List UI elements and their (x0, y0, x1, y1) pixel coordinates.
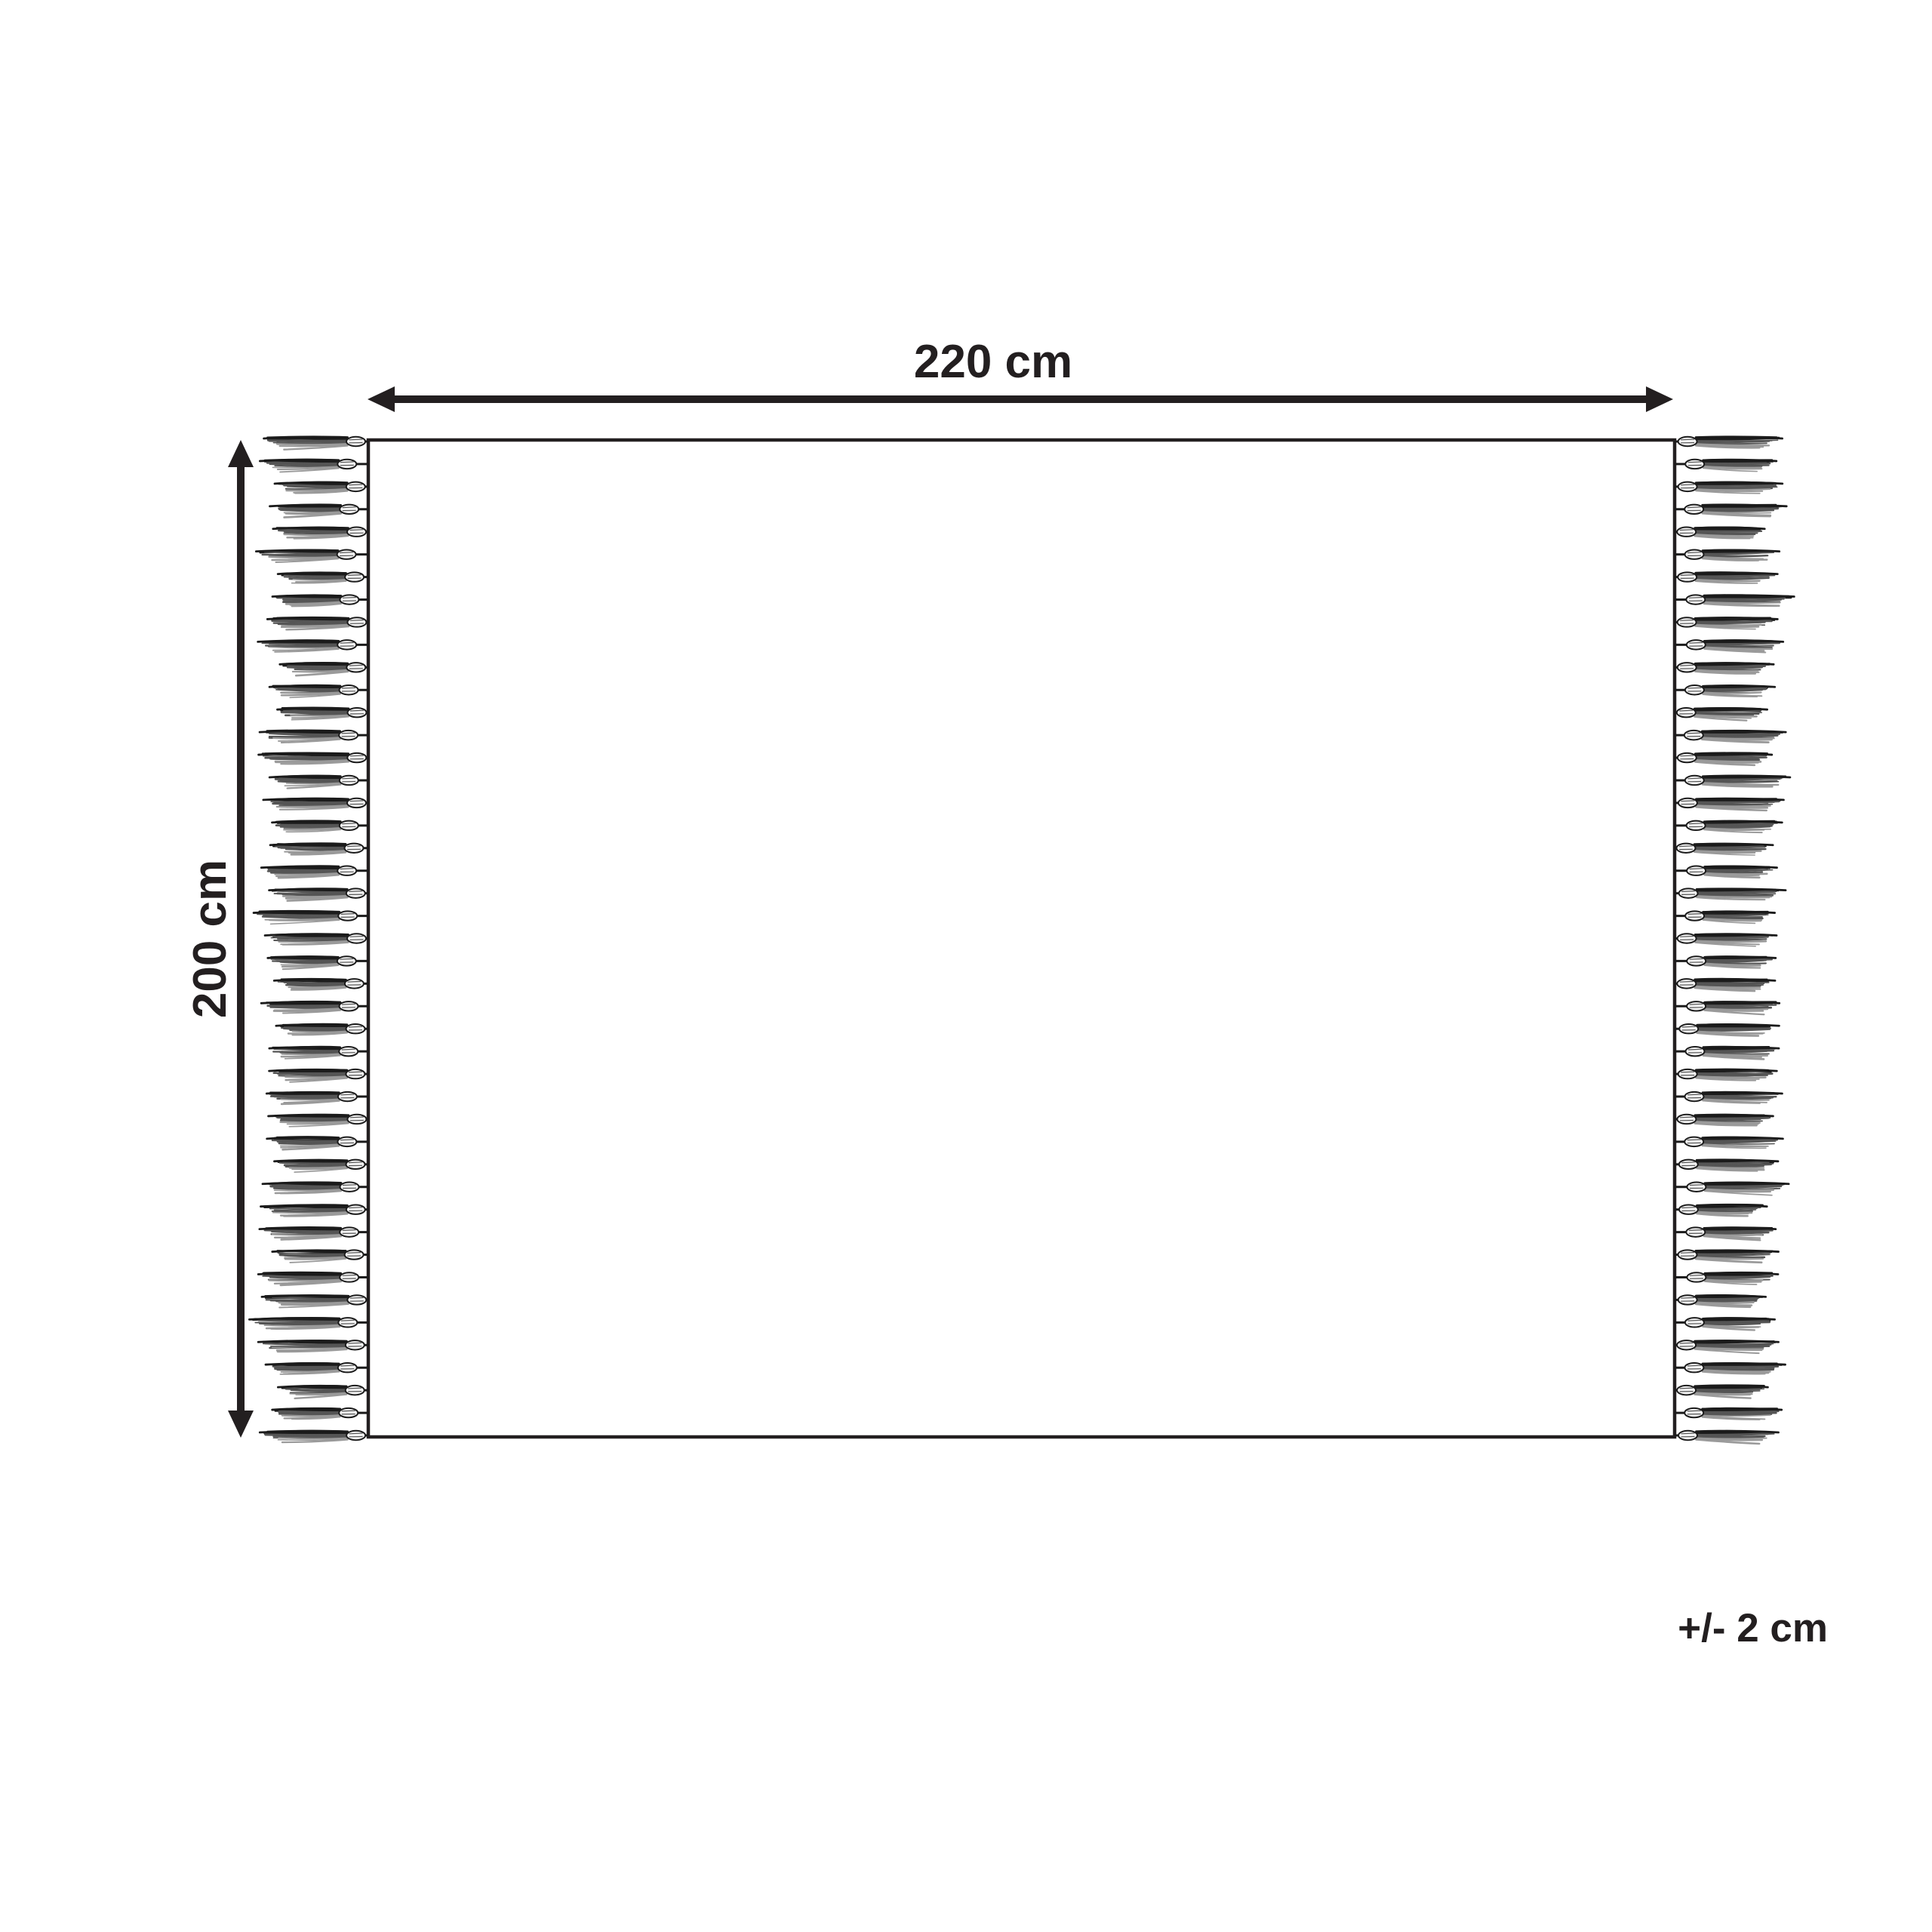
width-dimension-label: 220 cm (914, 336, 1072, 388)
fringe-tassel (1675, 821, 1782, 832)
fringe-tassel (272, 595, 368, 606)
fringe-tassel (1675, 798, 1783, 811)
fringe-tassel (1675, 1250, 1779, 1262)
fringe-tassel (272, 1250, 368, 1263)
fringe-tassel (258, 1340, 368, 1352)
fringe-tassel (1675, 505, 1786, 517)
fringe-tassel (269, 776, 368, 789)
height-arrow-top-head-icon (228, 440, 254, 467)
fringe-tassel (1675, 1340, 1779, 1353)
fringe-tassel (278, 572, 368, 583)
fringe-tassel (1675, 685, 1775, 697)
fringe-tassel (1675, 595, 1794, 606)
fringe-tassel (1675, 1363, 1786, 1374)
fringe-tassel (260, 460, 368, 472)
fringe-tassel (1675, 1408, 1782, 1420)
fringe-tassel (261, 1001, 368, 1013)
fringe-tassel (276, 1024, 368, 1035)
fringe-tassel (1675, 460, 1777, 472)
fringe-tassel (1675, 1160, 1778, 1171)
fringe-tassel (1675, 1227, 1776, 1240)
height-dimension-label: 200 cm (184, 860, 236, 1018)
fringe-tassel (1675, 911, 1775, 923)
width-arrow-left-head-icon (368, 386, 395, 412)
rug-fringe-left (249, 437, 368, 1442)
rug-body (368, 440, 1675, 1437)
fringe-tassel (269, 888, 368, 900)
fringe-tassel (1675, 1318, 1775, 1330)
fringe-tassel (269, 685, 368, 697)
fringe-tassel (272, 821, 369, 832)
fringe-tassel (261, 1204, 369, 1216)
width-dimension-arrow (368, 386, 1673, 412)
fringe-tassel (1675, 776, 1790, 787)
fringe-tassel (261, 866, 368, 878)
fringe-tassel (272, 1408, 368, 1420)
fringe-tassel (1675, 549, 1780, 560)
fringe-tassel (1675, 1001, 1780, 1014)
rug-fringe-right (1675, 437, 1794, 1444)
fringe-tassel (273, 528, 368, 539)
fringe-tassel (1675, 1431, 1779, 1444)
fringe-tassel (1675, 753, 1772, 765)
fringe-tassel (1675, 1386, 1767, 1398)
fringe-tassel (269, 1047, 368, 1059)
fringe-tassel (1675, 1069, 1777, 1081)
fringe-tassel (1675, 663, 1774, 674)
fringe-tassel (280, 663, 368, 675)
fringe-tassel (1675, 1137, 1783, 1149)
fringe-tassel (1675, 866, 1777, 878)
fringe-tassel (1675, 527, 1764, 538)
fringe-tassel (264, 437, 368, 450)
fringe-tassel (275, 1160, 369, 1173)
fringe-tassel (1675, 1183, 1789, 1195)
fringe-tassel (267, 1137, 368, 1149)
fringe-tassel (1675, 1047, 1779, 1059)
height-arrow-bottom-head-icon (228, 1411, 254, 1438)
fringe-tassel (1675, 979, 1775, 991)
fringe-tassel (1675, 731, 1786, 743)
fringe-tassel (278, 708, 369, 720)
fringe-tassel (1675, 482, 1783, 494)
fringe-tassel (1675, 437, 1783, 448)
fringe-tassel (1675, 1272, 1778, 1284)
fringe-tassel (249, 1318, 368, 1328)
tolerance-label: +/- 2 cm (1678, 1606, 1828, 1651)
fringe-tassel (1675, 1295, 1766, 1306)
width-arrow-right-head-icon (1646, 386, 1673, 412)
fringe-tassel (1675, 617, 1777, 629)
fringe-tassel (278, 1386, 368, 1398)
fringe-tassel (1675, 888, 1786, 900)
fringe-tassel (1675, 1092, 1782, 1103)
fringe-tassel (263, 798, 368, 810)
fringe-tassel (259, 753, 368, 764)
fringe-tassel (1675, 1204, 1767, 1216)
fringe-tassel (1675, 1024, 1779, 1035)
rug-dimension-diagram: 220 cm 200 cm +/- 2 cm (0, 0, 1932, 1932)
fringe-tassel (260, 731, 368, 743)
fringe-tassel (266, 1092, 368, 1104)
fringe-tassel (274, 979, 368, 990)
fringe-tassel (267, 617, 368, 629)
fringe-tassel (256, 549, 368, 562)
fringe-tassel (270, 505, 369, 518)
fringe-tassel (1675, 708, 1767, 721)
fringe-tassel (258, 640, 368, 652)
fringe-tassel (263, 1183, 368, 1194)
fringe-tassel (1675, 640, 1783, 652)
fringe-tassel (1675, 1115, 1773, 1125)
fringe-tassel (260, 1431, 368, 1442)
fringe-tassel (268, 956, 368, 969)
fringe-tassel (270, 844, 368, 855)
diagram-canvas: 220 cm 200 cm +/- 2 cm (0, 0, 1932, 1932)
fringe-tassel (254, 911, 368, 924)
fringe-tassel (1675, 956, 1776, 968)
fringe-tassel (275, 482, 368, 494)
fringe-tassel (269, 1115, 368, 1127)
fringe-tassel (258, 1272, 368, 1285)
fringe-tassel (262, 1295, 368, 1307)
fringe-tassel (269, 1069, 368, 1082)
fringe-tassel (260, 1227, 368, 1239)
fringe-tassel (1675, 572, 1777, 583)
fringe-tassel (265, 934, 368, 945)
fringe-tassel (1675, 934, 1777, 946)
fringe-tassel (1675, 844, 1773, 855)
fringe-tassel (266, 1363, 368, 1374)
